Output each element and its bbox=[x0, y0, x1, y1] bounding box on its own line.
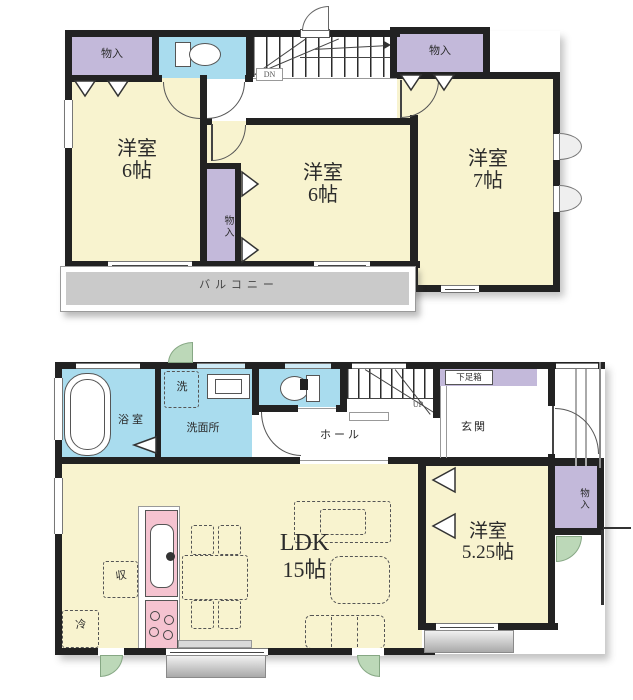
wall bbox=[246, 118, 413, 125]
casement-window-icon bbox=[559, 185, 582, 212]
stove-burner-icon bbox=[149, 627, 159, 637]
wall bbox=[65, 30, 72, 268]
shoe-cabinet-label: 下足箱 bbox=[445, 370, 493, 385]
closet-c-label: 物入 bbox=[209, 198, 233, 256]
bedroom-right-label: 洋室 7帖 bbox=[428, 148, 548, 193]
closet-a-label: 物入 bbox=[72, 48, 152, 60]
kitchen-stove-unit bbox=[145, 600, 178, 650]
window-sill bbox=[178, 640, 252, 648]
wall bbox=[483, 72, 560, 79]
wall bbox=[65, 30, 400, 37]
fence-line bbox=[601, 530, 604, 605]
fence-line bbox=[603, 527, 631, 529]
exterior-door-swing bbox=[357, 655, 380, 677]
window-line bbox=[440, 627, 494, 628]
window bbox=[285, 363, 331, 369]
vent-window-swing bbox=[302, 6, 329, 31]
window bbox=[556, 363, 598, 369]
wall bbox=[200, 75, 207, 268]
bedroom-label: 洋室 5.25帖 bbox=[428, 521, 548, 564]
wall bbox=[433, 362, 440, 418]
sofa bbox=[305, 615, 385, 649]
first-floor: UP bbox=[0, 330, 633, 700]
room-name: LDK bbox=[280, 530, 329, 556]
sofa-divider bbox=[357, 617, 358, 647]
door-leaf bbox=[552, 406, 554, 454]
toilet-door-line bbox=[298, 408, 336, 409]
closet-b-label: 物入 bbox=[397, 45, 483, 57]
wall bbox=[245, 75, 253, 82]
window-line bbox=[170, 652, 264, 653]
room-size: 7帖 bbox=[473, 170, 503, 192]
stairs-down-label: DN bbox=[256, 68, 283, 81]
folding-door-icon bbox=[396, 74, 460, 92]
dining-chair bbox=[191, 600, 214, 629]
closet-d-label: 物入 bbox=[562, 477, 588, 521]
faucet-icon bbox=[166, 552, 175, 561]
second-floor: DN 物入 物入 物入 洋室 6帖 洋室 6帖 洋室 7帖 バルコニー bbox=[0, 0, 633, 330]
wall bbox=[548, 458, 555, 630]
window bbox=[352, 363, 406, 369]
entrance-label: 玄関 bbox=[448, 421, 500, 433]
folding-door-icon bbox=[241, 170, 261, 266]
room-size: 6帖 bbox=[308, 184, 338, 206]
wall bbox=[548, 528, 604, 535]
stove-burner-icon bbox=[150, 611, 160, 621]
porch-edge bbox=[599, 362, 601, 468]
bath-label: 浴室 bbox=[106, 414, 158, 426]
stairs-up-treads bbox=[347, 369, 435, 399]
wall bbox=[418, 285, 560, 292]
wall bbox=[252, 405, 298, 412]
balcony: バルコニー bbox=[60, 266, 416, 312]
dining-table bbox=[182, 555, 248, 600]
wall bbox=[553, 72, 560, 292]
wall bbox=[418, 460, 426, 630]
terrace bbox=[166, 655, 266, 678]
dining-chair bbox=[218, 600, 241, 629]
wall bbox=[426, 458, 604, 466]
room-name: 洋室 bbox=[303, 162, 343, 184]
toilet-seat-icon bbox=[300, 379, 308, 390]
window bbox=[76, 363, 140, 369]
sliding-door-line bbox=[300, 460, 388, 461]
folding-door-icon bbox=[70, 80, 134, 98]
room-size: 5.25帖 bbox=[462, 542, 514, 563]
dining-chair bbox=[218, 525, 241, 555]
sofa-divider bbox=[331, 617, 332, 647]
casement-window-icon bbox=[559, 133, 582, 160]
bath-door-icon bbox=[132, 435, 158, 455]
stairs-up-label: UP bbox=[406, 401, 430, 410]
terrace bbox=[424, 630, 514, 653]
window bbox=[54, 478, 63, 534]
exterior-door-swing bbox=[100, 655, 123, 677]
stair-landing bbox=[349, 412, 389, 421]
window bbox=[54, 378, 63, 440]
balcony-label: バルコニー bbox=[149, 279, 329, 291]
vanity-basin-icon bbox=[215, 379, 242, 394]
window bbox=[64, 100, 73, 148]
wall bbox=[390, 27, 490, 34]
bedroom-right-area bbox=[414, 118, 557, 289]
hall-label: ホール bbox=[312, 429, 370, 441]
window-line bbox=[445, 289, 475, 290]
wall bbox=[55, 457, 300, 464]
bedroom-middle-label: 洋室 6帖 bbox=[268, 162, 378, 207]
floor-plan: DN 物入 物入 物入 洋室 6帖 洋室 6帖 洋室 7帖 バルコニー bbox=[0, 0, 633, 700]
wall bbox=[597, 458, 604, 535]
toilet-tank-icon bbox=[306, 375, 320, 402]
window bbox=[197, 363, 245, 369]
dining-chair bbox=[191, 525, 214, 555]
bedroom-left-label: 洋室 6帖 bbox=[82, 138, 192, 183]
stove-burner-icon bbox=[163, 630, 173, 640]
room-name: 洋室 bbox=[117, 138, 157, 160]
room-size: 15帖 bbox=[282, 557, 326, 582]
stairs-line bbox=[300, 57, 397, 58]
room-name: 洋室 bbox=[469, 521, 507, 542]
stove-burner-icon bbox=[164, 615, 174, 625]
step-line bbox=[440, 386, 441, 458]
laundry-label: 洗 bbox=[168, 381, 196, 393]
ldk-label: LDK 15帖 bbox=[252, 530, 357, 584]
toilet-bowl-icon bbox=[189, 43, 221, 66]
wall bbox=[340, 362, 347, 412]
room-size: 6帖 bbox=[122, 160, 152, 182]
bathtub-inner bbox=[70, 379, 105, 450]
room-name: 洋室 bbox=[468, 148, 508, 170]
door-gap bbox=[252, 415, 259, 457]
washroom-label: 洗面所 bbox=[170, 422, 236, 434]
exterior-window-swing bbox=[168, 342, 193, 363]
